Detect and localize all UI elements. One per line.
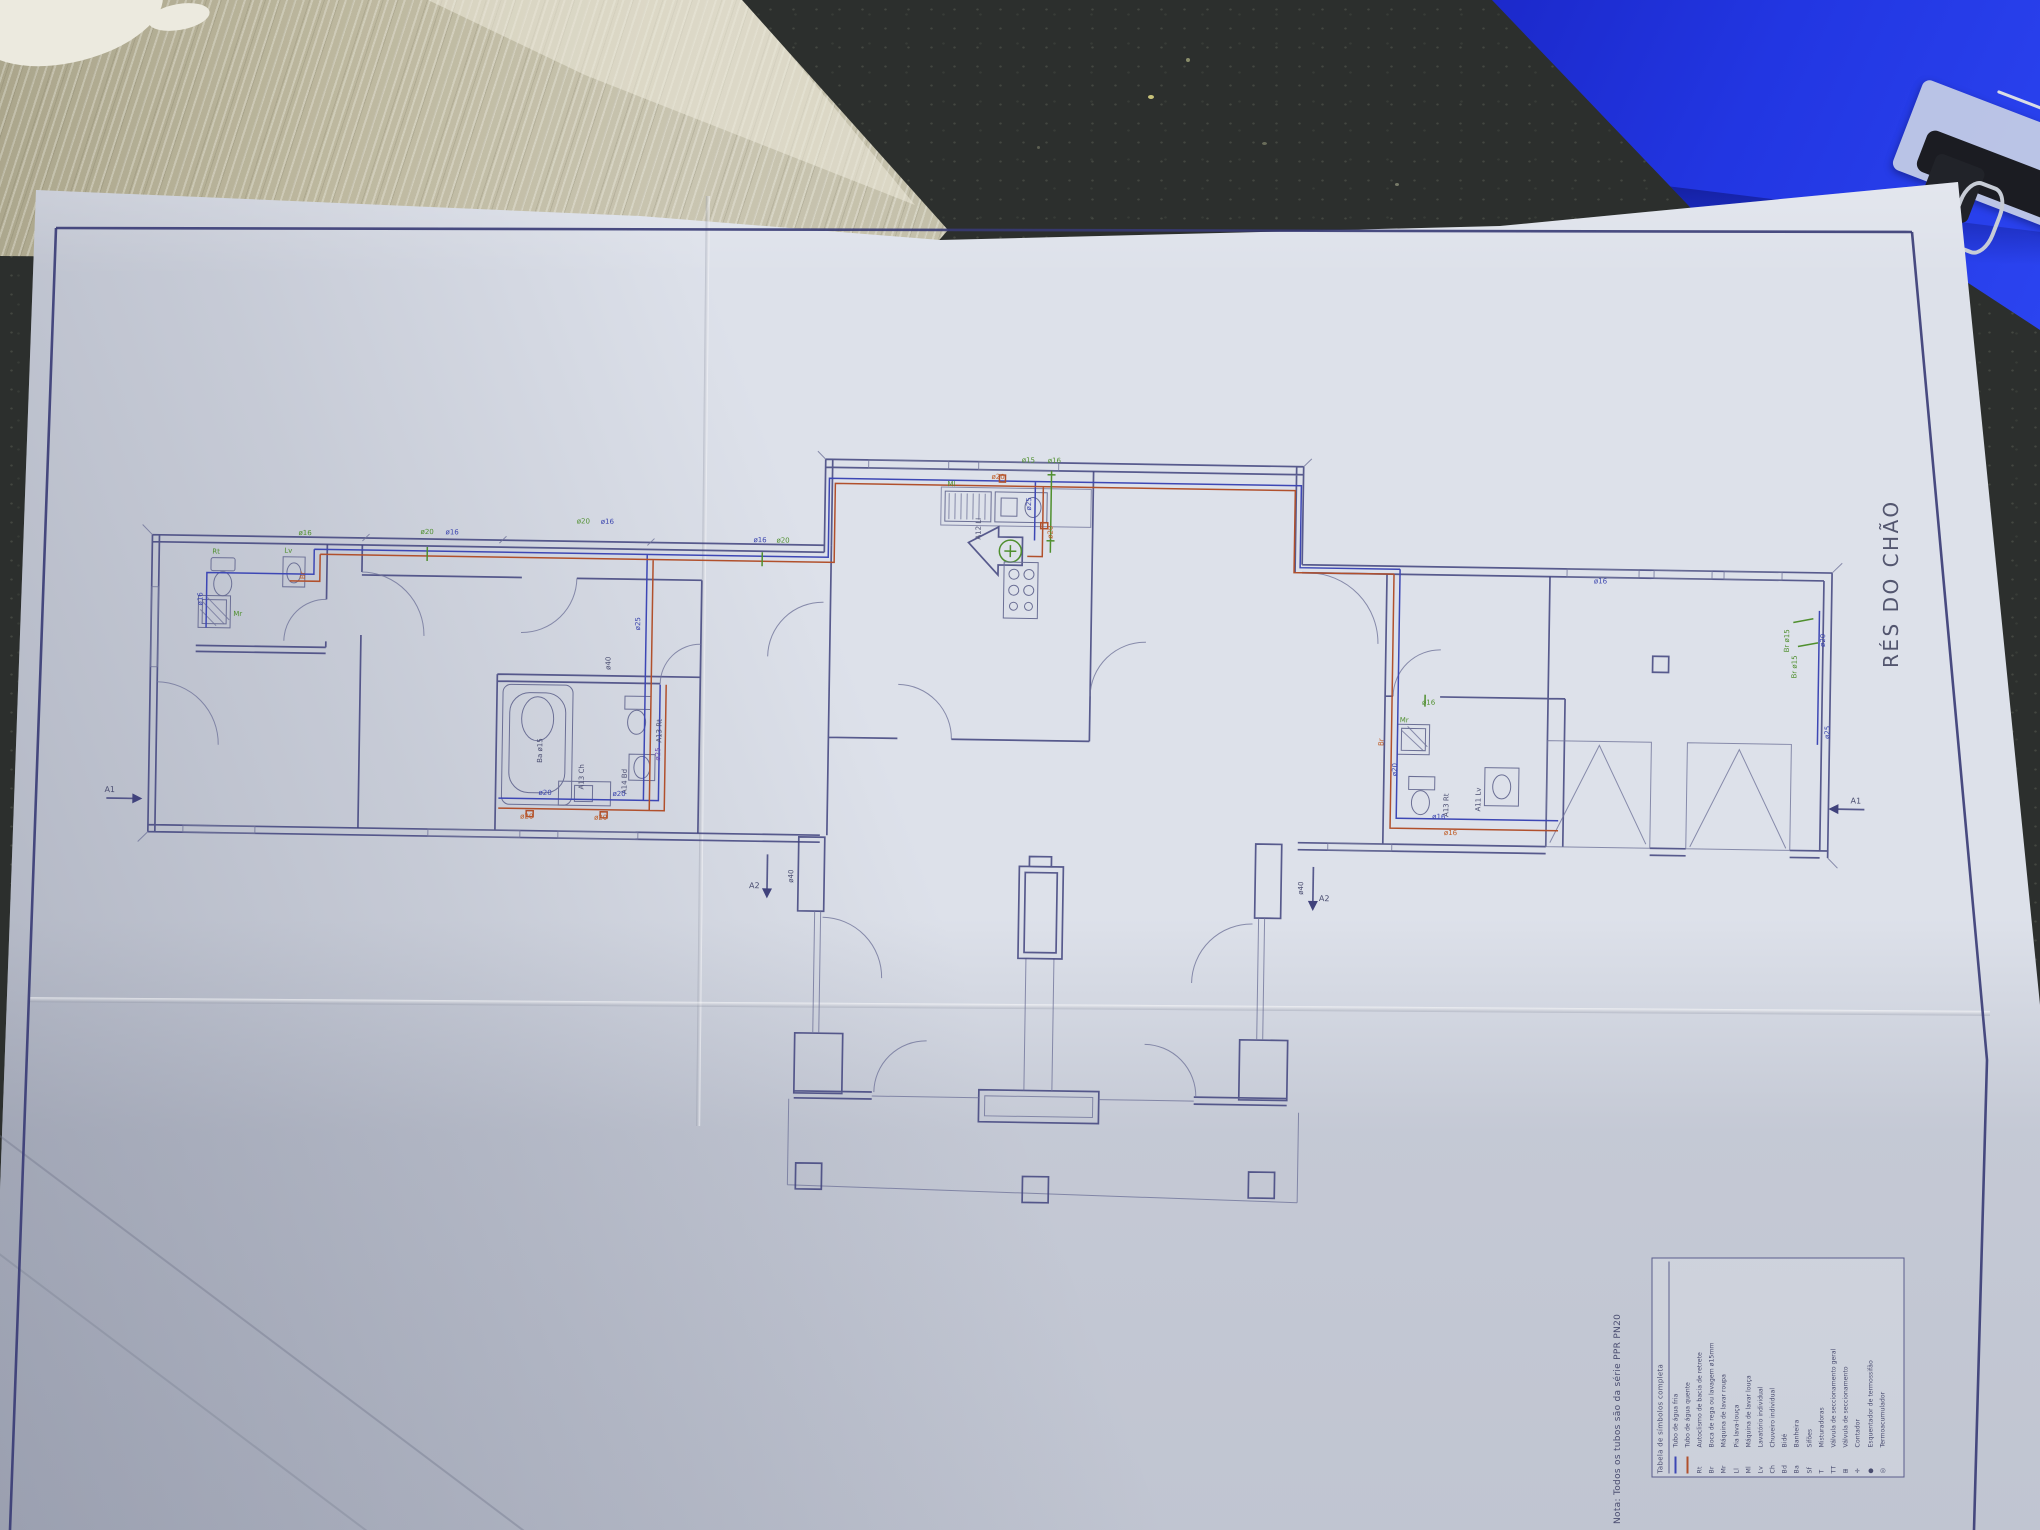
legend-row: TMisturadoras [1816,1262,1828,1474]
legend-row: BdBidé [1779,1262,1791,1474]
pipe-label: ø20 [538,789,551,797]
legend-symbol: Ml [1745,1448,1752,1474]
section-label: A1 [104,785,115,794]
pipe-label: Br ø15 [1783,629,1791,652]
left-bathroom-fixtures [198,555,305,629]
kitchen-sink-symbol [995,492,1047,523]
pipe-label: ø20 [577,517,590,525]
legend-symbol [1684,1448,1691,1474]
lavatory-symbol [1484,768,1519,807]
legend-row: RtAutoclismo de bacia de retrete [1694,1262,1706,1474]
hot-water-pipes [286,475,1563,831]
toilet-symbol [211,558,235,571]
pipe-label: ø16 [196,592,204,606]
garage-door-symbol [1686,743,1792,851]
legend-label: Banheira [1794,1420,1801,1448]
legend-symbol: Lv [1757,1448,1764,1474]
legend-row: ✛Contador [1852,1262,1864,1474]
fixture-label: A13 Rt [655,719,663,743]
legend-label: Lavatório individual [1757,1387,1764,1448]
pipe-label: ø20 [991,473,1004,481]
legend-row: ◎Termoacumulador [1877,1262,1889,1474]
pipe-label: ø20 [421,528,434,536]
pipe-label: ø20 [520,812,533,820]
note-text: Nota: Todos os tubos são da série PPR PN… [1613,1248,1641,1524]
pipe-label: ø40 [604,657,612,670]
pipe-label: ø25 [634,617,642,630]
legend-row: BrBoca de rega ou lavagem ø15mm [1706,1262,1718,1474]
legend-label: Termoacumulador [1879,1392,1886,1448]
legend-symbol: T [1818,1448,1825,1474]
legend-row: LlPia lava-louça [1730,1262,1742,1474]
legend-label: Boca de rega ou lavagem ø15mm [1709,1343,1716,1448]
bidet-symbol [629,754,655,780]
legend-symbol: Sf [1806,1448,1813,1474]
lower-block-walls [787,837,1303,1207]
fixture-label: A13 Ch [578,764,586,789]
pipe-label: ø25 [1823,726,1831,739]
legend-row: TTVálvula de seccionamento geral [1828,1262,1840,1474]
toilet-symbol [1409,776,1435,789]
pipe-label: ø20 [1047,526,1055,539]
fixture-label: A11 Lv [1474,787,1482,811]
legend-row: LvLavatório individual [1755,1262,1767,1474]
legend-symbol: Br [1709,1448,1716,1474]
pipe-label: ø16 [1422,699,1436,707]
legend-label: Tubo de água quente [1684,1382,1691,1447]
legend-label: Esquentador de termossifão [1867,1360,1874,1447]
legend-label: Sifões [1806,1429,1813,1448]
legend-symbol: Ch [1770,1448,1777,1474]
toilet-symbol [625,696,651,709]
legend-row: SfSifões [1804,1262,1816,1474]
fixture-label: Mr [1400,716,1409,724]
legend-row: ●Esquentador de termossifão [1865,1262,1877,1474]
pipe-label: ø16 [1048,457,1062,465]
pipe-label: ø20 [594,814,607,822]
pipe-label: ø20 [776,536,789,544]
pipe-label: Mr [233,610,242,618]
fixture-label: Ba ø15 [536,738,544,763]
legend-symbol: Ll [1733,1448,1740,1474]
pipe-label: ø20 [612,790,625,798]
pipe-label: ø25 [654,747,662,760]
windows [148,449,1784,858]
legend-label: Válvula de seccionamento geral [1831,1349,1838,1448]
garage-door-symbol [1546,741,1652,849]
pipe-label: ø40 [1297,881,1305,894]
pipe-label: ø16 [1444,829,1458,837]
legend-symbol [1672,1448,1679,1474]
fixture-label: A13 Rt [1442,793,1450,817]
interior-walls [193,457,1569,846]
pipe-label: ø20 [1819,634,1827,647]
kitchen-fixtures [939,487,1091,619]
pipe-label: Br ø15 [1790,655,1798,678]
valve-ticks [423,461,1428,831]
pipe-label: ø16 [753,536,767,544]
legend-symbol: Mr [1721,1448,1728,1474]
garage-symbols [1546,607,1820,851]
pipe-label: Br [299,571,307,579]
legend-label: Contador [1855,1419,1862,1448]
garage-column [1653,656,1669,672]
legend-symbol: Ba [1794,1448,1801,1474]
pipe-label: Lv [284,547,292,555]
dishwasher-symbol [945,491,991,522]
section-label: A2 [1319,894,1330,903]
legend-label: Máquina de lavar roupa [1721,1374,1728,1447]
section-markers [105,777,1865,920]
section-label: A2 [749,881,760,890]
legend-row: Tubo de água quente [1682,1262,1694,1474]
hot-pipe-swatch [1686,1457,1688,1474]
legend-label: Pia lava-louça [1733,1405,1740,1448]
cold-pipe-swatch [1674,1457,1676,1474]
legend-label: Autoclismo de bacia de retrete [1696,1352,1703,1447]
legend-symbol: ⊞ [1843,1448,1850,1474]
legend-row: ⊞Válvula de seccionamento [1840,1262,1852,1474]
legend-row: ChChuveiro individual [1767,1262,1779,1474]
pipe-label: Rt [212,548,220,556]
legend-label: Chuveiro individual [1770,1388,1777,1448]
legend-row: MlMáquina de lavar louça [1743,1262,1755,1474]
legend-symbol: TT [1831,1448,1838,1474]
section-label: A1 [1850,796,1861,805]
pipe-label: ø16 [446,528,460,536]
legend-table: Tabela de símbolos completa Tubo de água… [1652,1258,1905,1478]
legend-symbol: Rt [1696,1448,1703,1474]
legend-symbol: ✛ [1855,1448,1862,1474]
legend-header: Tabela de símbolos completa [1655,1262,1670,1474]
fixture-label: Ml [947,480,955,488]
legend-label: Bidé [1782,1434,1789,1448]
legend-symbol: ◎ [1879,1448,1886,1474]
legend-row: MrMáquina de lavar roupa [1718,1262,1730,1474]
pipe-label: ø20 [1391,763,1399,776]
pipe-label: ø16 [298,529,312,537]
legend-row: BaBanheira [1791,1262,1803,1474]
pipe-label: ø40 [787,869,795,882]
pipe-label: ø25 [1025,497,1033,510]
legend-row: Tubo de água fria [1670,1262,1682,1474]
pipe-label: ø16 [601,518,615,526]
cold-water-pipes [203,469,1563,821]
floor-plan: ø16 Rt Lv Br Mr ø16 ø20 ø16 ø20 ø16 ø16 … [98,440,1870,1216]
right-bathroom-fixtures [1396,724,1519,816]
legend-symbol: Bd [1782,1448,1789,1474]
pipe-label: ø15 [1022,456,1035,464]
pipe-label: Br [1377,738,1385,746]
legend-label: Máquina de lavar louça [1745,1375,1752,1447]
legend-label: Válvula de seccionamento [1843,1366,1850,1447]
pipe-label: ø16 [1594,577,1608,585]
photo-scene: ø16 Rt Lv Br Mr ø16 ø20 ø16 ø20 ø16 ø16 … [0,0,2040,1530]
legend-symbol: ● [1867,1448,1874,1474]
plan-title: RÉS DO CHÃO [1879,499,1903,668]
legend-label: Misturadoras [1818,1407,1825,1447]
legend-label: Tubo de água fria [1672,1394,1679,1448]
fixture-label: A12 Ll [975,518,983,540]
